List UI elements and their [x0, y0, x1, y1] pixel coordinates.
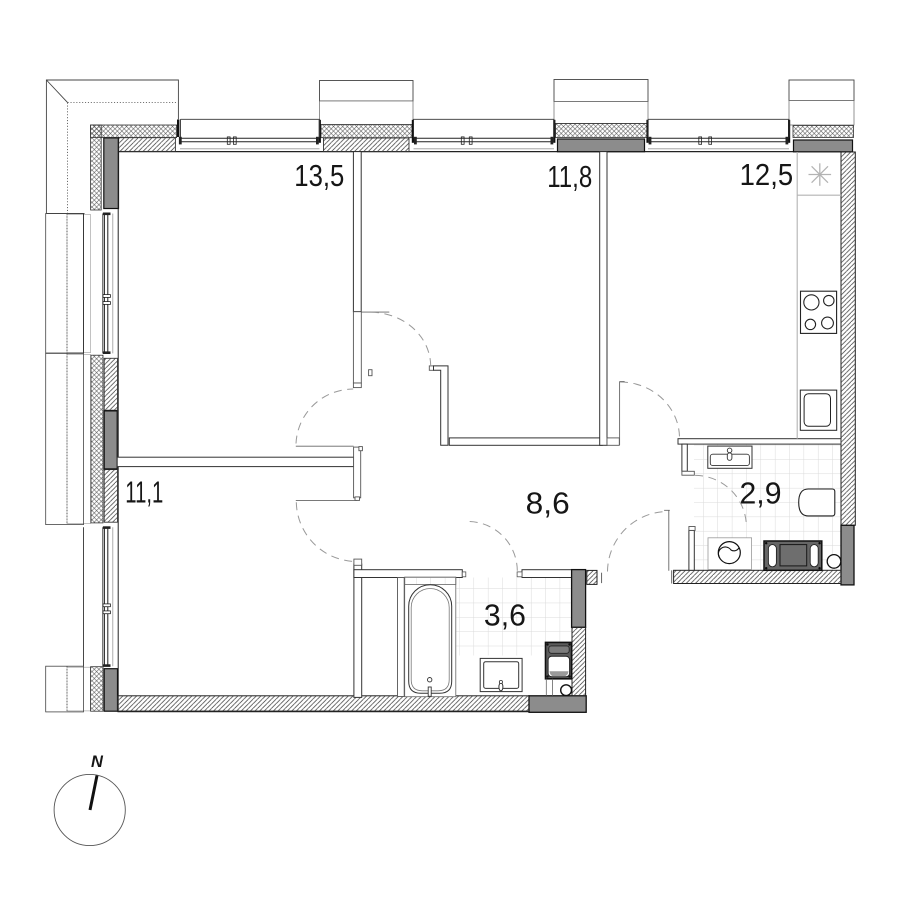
svg-text:11,8: 11,8 [547, 159, 592, 194]
svg-text:11,1: 11,1 [125, 475, 163, 510]
svg-text:12,5: 12,5 [740, 157, 794, 192]
svg-text:13,5: 13,5 [294, 158, 344, 193]
svg-text:2,9: 2,9 [740, 476, 782, 511]
svg-text:8,6: 8,6 [526, 486, 570, 521]
svg-text:N: N [91, 753, 104, 771]
svg-text:3,6: 3,6 [484, 598, 526, 633]
